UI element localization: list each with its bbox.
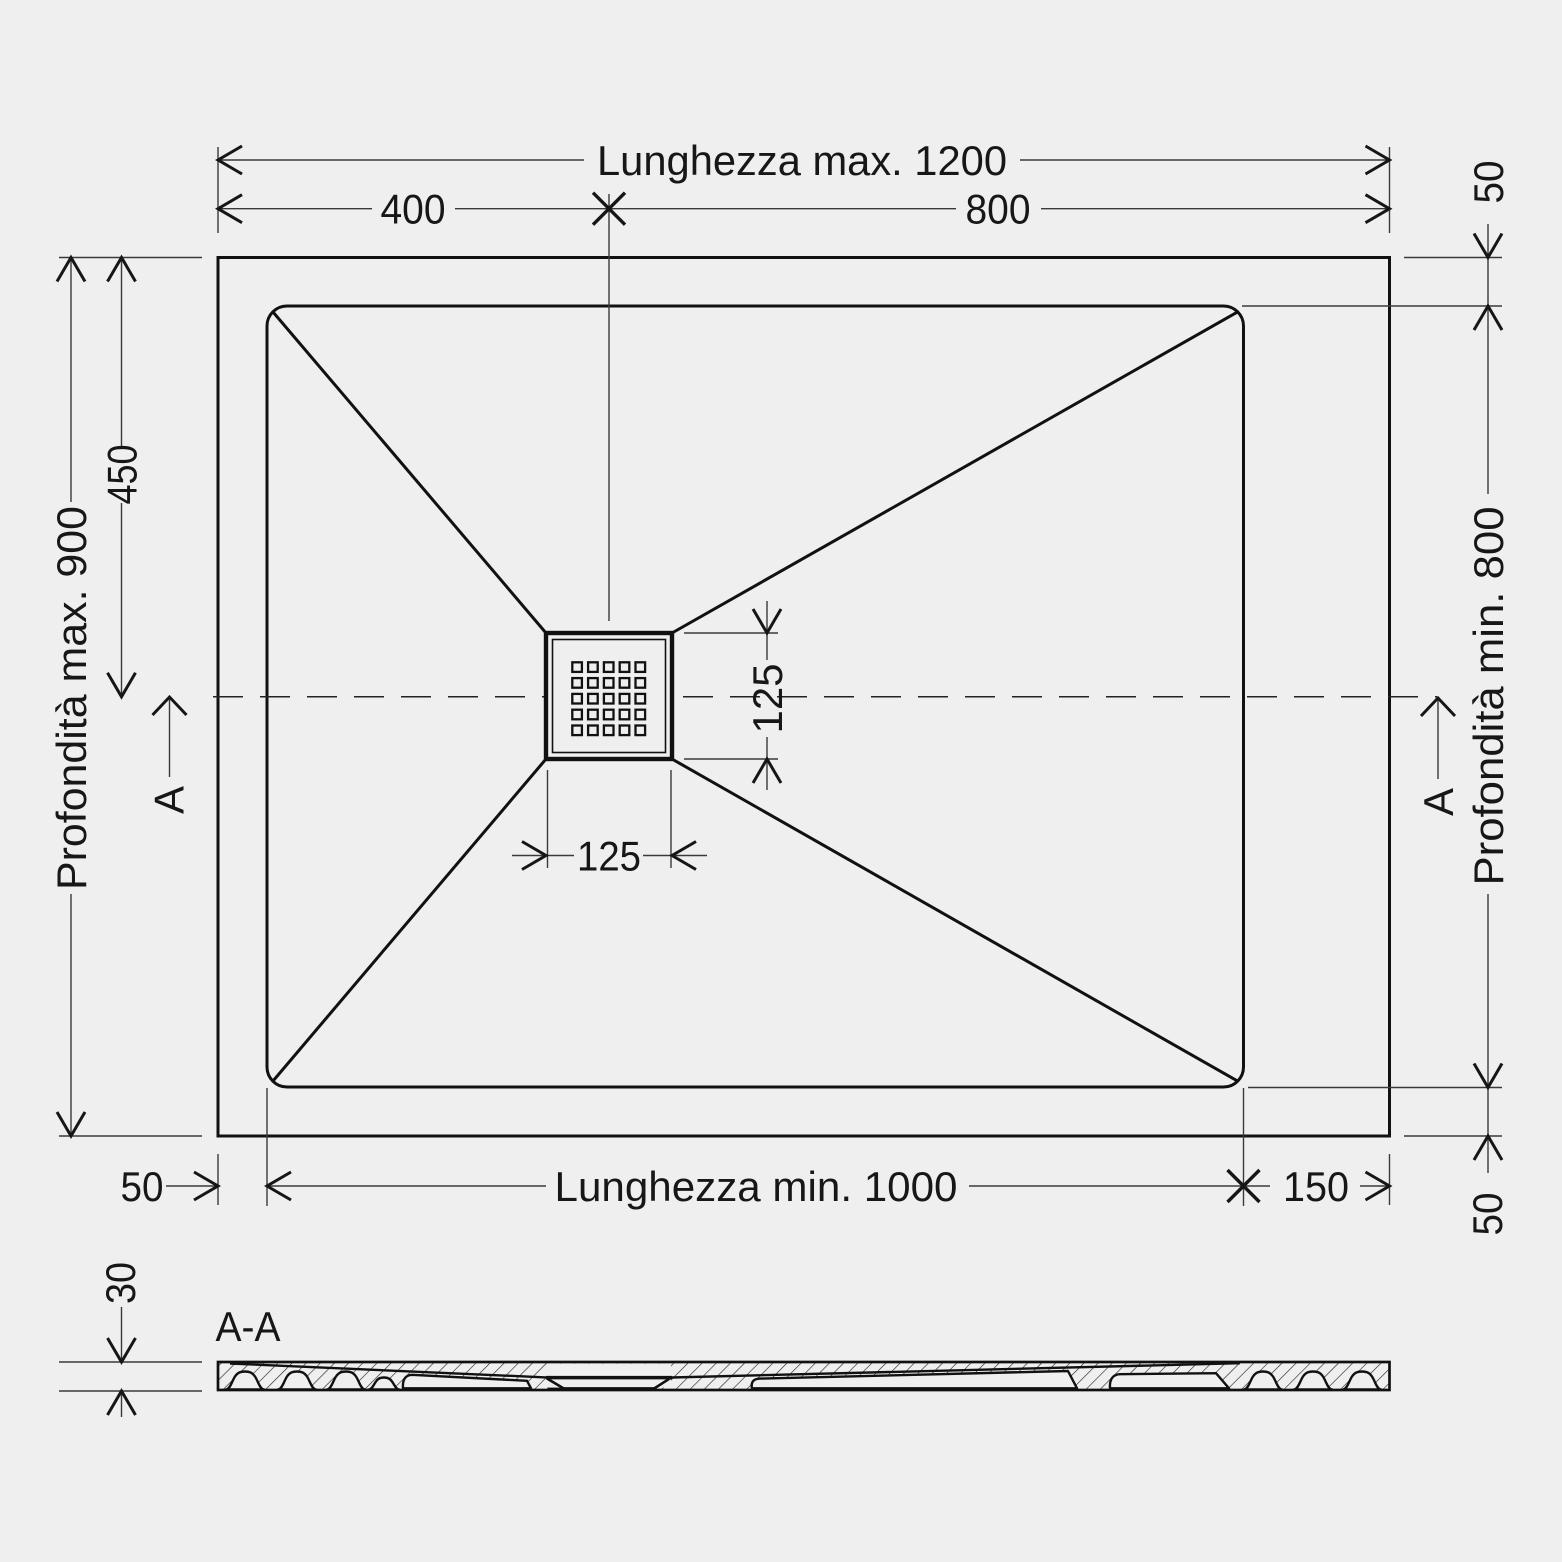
svg-text:400: 400 <box>381 186 446 233</box>
svg-text:A: A <box>146 786 193 814</box>
svg-text:50: 50 <box>121 1163 164 1210</box>
svg-text:Lunghezza min. 1000: Lunghezza min. 1000 <box>555 1163 958 1210</box>
svg-text:50: 50 <box>1464 1193 1511 1236</box>
svg-text:125: 125 <box>577 833 641 880</box>
svg-text:Profondità min. 800: Profondità min. 800 <box>1465 507 1512 886</box>
svg-text:150: 150 <box>1283 1163 1349 1210</box>
svg-text:30: 30 <box>97 1262 144 1304</box>
svg-text:Profondità max. 900: Profondità max. 900 <box>48 506 95 890</box>
svg-text:A: A <box>1415 788 1462 816</box>
svg-text:450: 450 <box>99 445 146 505</box>
svg-text:125: 125 <box>744 664 791 734</box>
svg-text:Lunghezza max. 1200: Lunghezza max. 1200 <box>597 137 1007 184</box>
svg-text:800: 800 <box>966 186 1031 233</box>
svg-text:50: 50 <box>1465 161 1512 204</box>
svg-text:A-A: A-A <box>216 1303 281 1350</box>
